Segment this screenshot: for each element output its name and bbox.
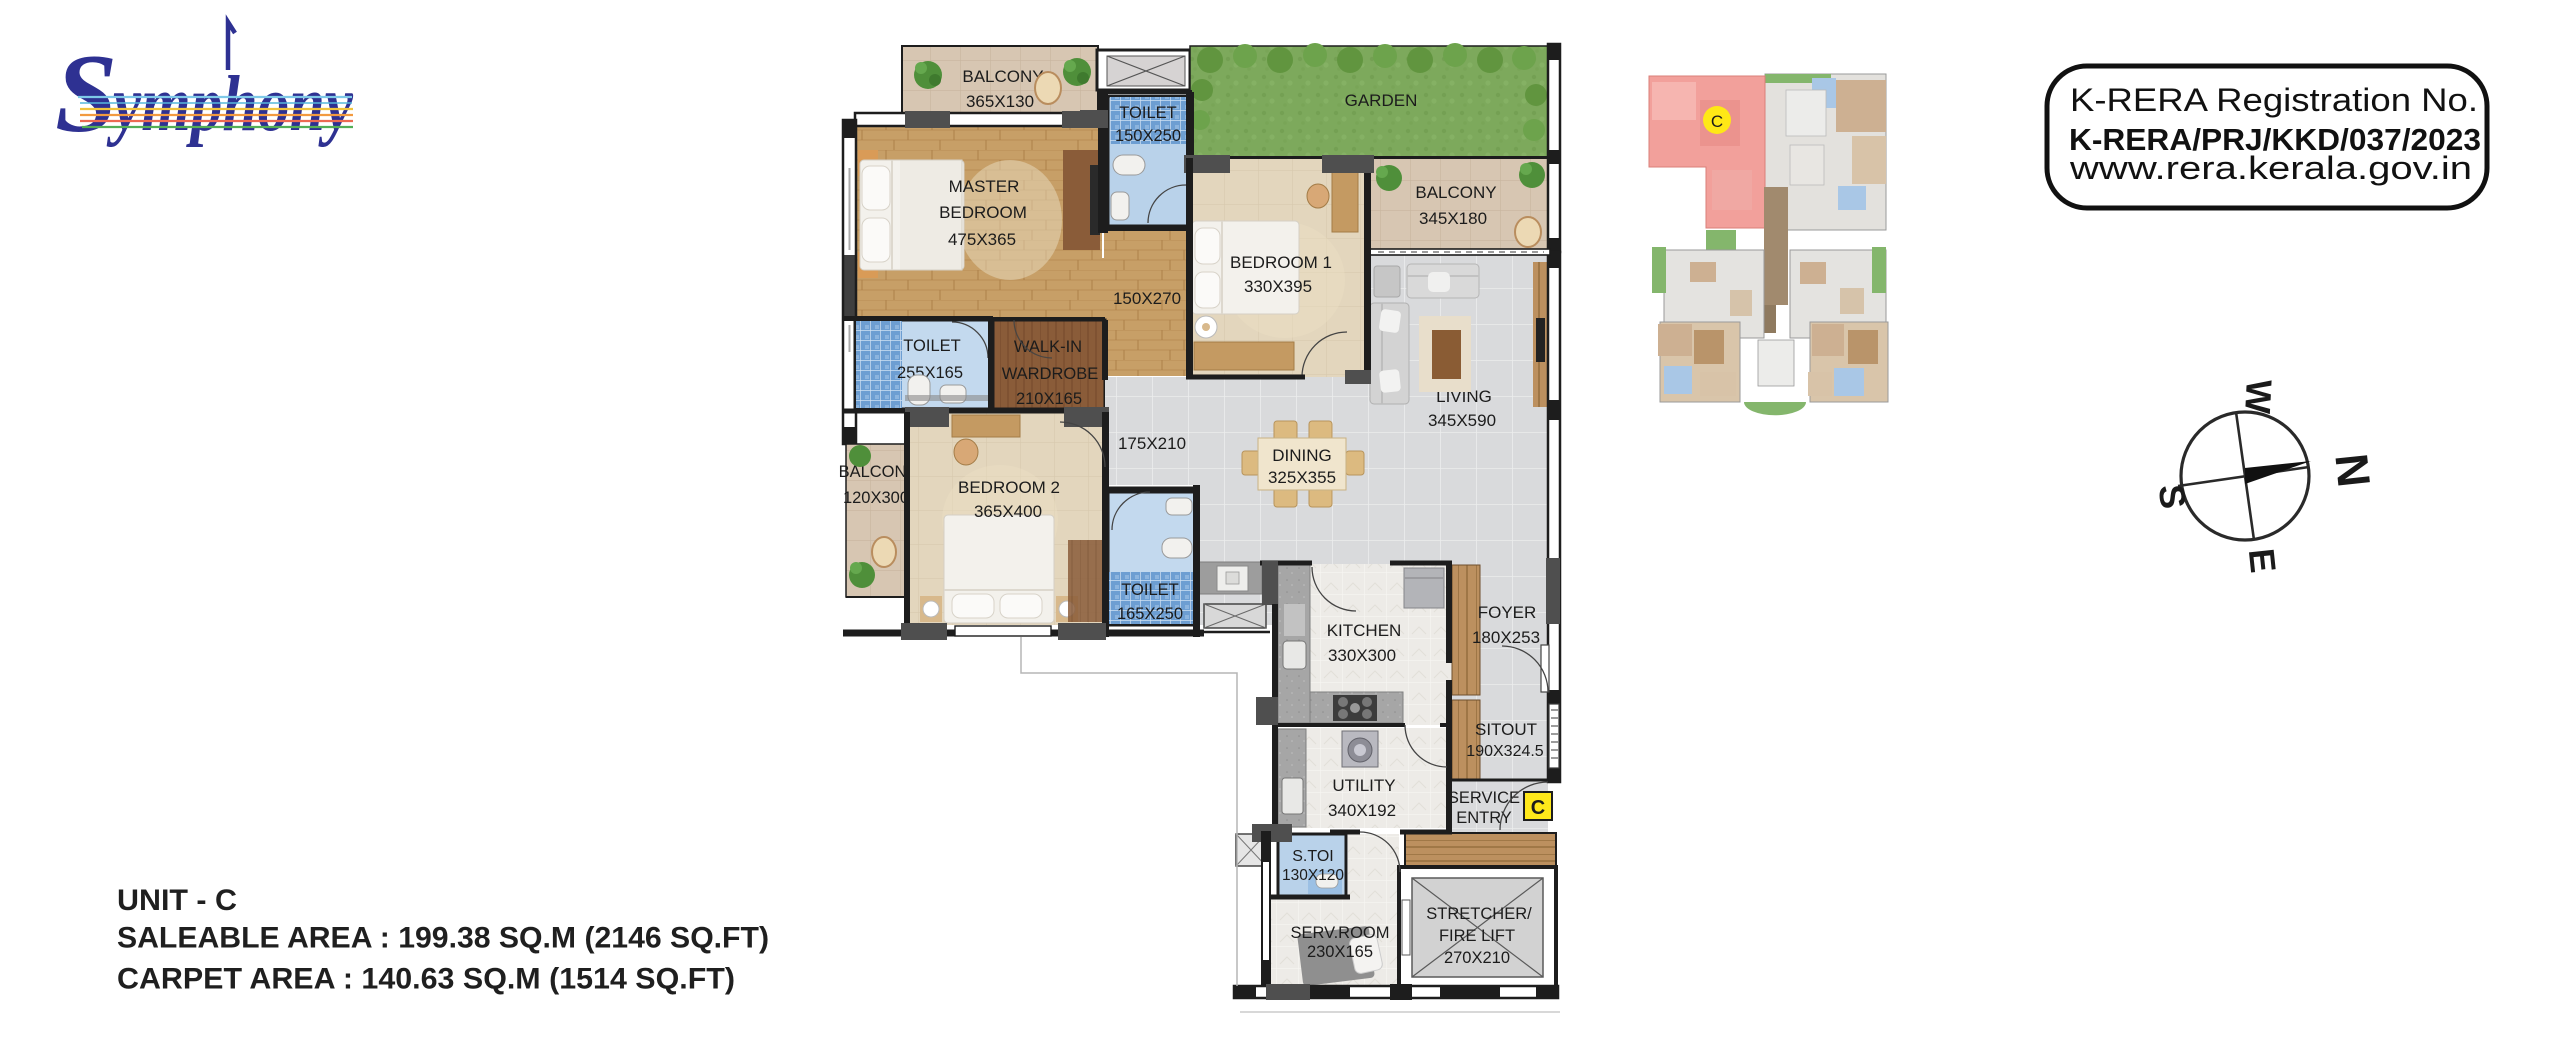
svg-text:SITOUT: SITOUT xyxy=(1475,720,1537,739)
svg-text:S: S xyxy=(2151,483,2194,511)
svg-text:175X210: 175X210 xyxy=(1118,434,1186,453)
svg-text:BALCONY: BALCONY xyxy=(1415,183,1496,202)
svg-text:DINING: DINING xyxy=(1272,446,1332,465)
svg-text:N: N xyxy=(2325,451,2380,489)
svg-text:330X300: 330X300 xyxy=(1328,646,1396,665)
svg-text:345X180: 345X180 xyxy=(1419,209,1487,228)
svg-text:365X400: 365X400 xyxy=(974,502,1042,521)
svg-text:S.TOI: S.TOI xyxy=(1292,848,1334,865)
svg-text:E: E xyxy=(2241,547,2284,575)
svg-text:TOILET: TOILET xyxy=(903,337,960,355)
svg-text:UNIT - C: UNIT - C xyxy=(117,884,237,917)
svg-text:475X365: 475X365 xyxy=(948,230,1016,249)
svg-text:165X250: 165X250 xyxy=(1117,605,1183,623)
svg-text:MASTER: MASTER xyxy=(949,177,1020,196)
svg-text:STRETCHER/: STRETCHER/ xyxy=(1426,905,1532,923)
svg-text:CARPET AREA : 140.63 SQ.M (151: CARPET AREA : 140.63 SQ.M (1514 SQ.FT) xyxy=(117,963,735,996)
svg-text:FOYER: FOYER xyxy=(1478,603,1537,622)
svg-text:340X192: 340X192 xyxy=(1328,801,1396,820)
svg-text:270X210: 270X210 xyxy=(1444,949,1510,967)
svg-text:BEDROOM 1: BEDROOM 1 xyxy=(1230,253,1332,272)
svg-text:330X395: 330X395 xyxy=(1244,277,1312,296)
svg-text:ymphony: ymphony xyxy=(107,61,354,148)
svg-text:GARDEN: GARDEN xyxy=(1345,91,1418,110)
svg-text:K-RERA Registration No.: K-RERA Registration No. xyxy=(2070,82,2478,118)
svg-text:BALCONY: BALCONY xyxy=(962,67,1043,86)
svg-text:FIRE LIFT: FIRE LIFT xyxy=(1439,927,1515,945)
svg-text:365X130: 365X130 xyxy=(966,92,1034,111)
svg-text:TOILET: TOILET xyxy=(1121,581,1178,599)
svg-text:W: W xyxy=(2237,379,2280,415)
svg-text:150X270: 150X270 xyxy=(1113,289,1181,308)
svg-text:230X165: 230X165 xyxy=(1307,943,1373,961)
svg-text:TOILET: TOILET xyxy=(1119,104,1176,122)
svg-text:WALK-IN: WALK-IN xyxy=(1014,338,1082,356)
svg-text:BEDROOM: BEDROOM xyxy=(939,203,1027,222)
svg-text:325X355: 325X355 xyxy=(1268,468,1336,487)
svg-text:190X324.5: 190X324.5 xyxy=(1466,743,1544,760)
svg-text:150X250: 150X250 xyxy=(1115,127,1181,145)
svg-text:BEDROOM 2: BEDROOM 2 xyxy=(958,478,1060,497)
svg-text:KITCHEN: KITCHEN xyxy=(1327,621,1402,640)
svg-text:210X165: 210X165 xyxy=(1016,390,1082,408)
svg-text:130X120: 130X120 xyxy=(1282,867,1344,884)
svg-text:255X165: 255X165 xyxy=(897,364,963,382)
svg-text:SERVICE: SERVICE xyxy=(1448,789,1520,807)
svg-text:180X253: 180X253 xyxy=(1472,628,1540,647)
svg-text:SALEABLE AREA : 199.38 SQ.M (2: SALEABLE AREA : 199.38 SQ.M (2146 SQ.FT) xyxy=(117,922,769,955)
svg-text:SERV.ROOM: SERV.ROOM xyxy=(1290,924,1389,942)
svg-text:S: S xyxy=(55,32,117,156)
svg-text:120X300: 120X300 xyxy=(843,489,909,507)
svg-text:UTILITY: UTILITY xyxy=(1332,776,1395,795)
svg-text:C: C xyxy=(1711,112,1723,131)
svg-text:345X590: 345X590 xyxy=(1428,411,1496,430)
svg-text:C: C xyxy=(1531,797,1545,819)
svg-text:www.rera.kerala.gov.in: www.rera.kerala.gov.in xyxy=(2069,150,2472,186)
svg-text:WARDROBE: WARDROBE xyxy=(1002,365,1099,383)
